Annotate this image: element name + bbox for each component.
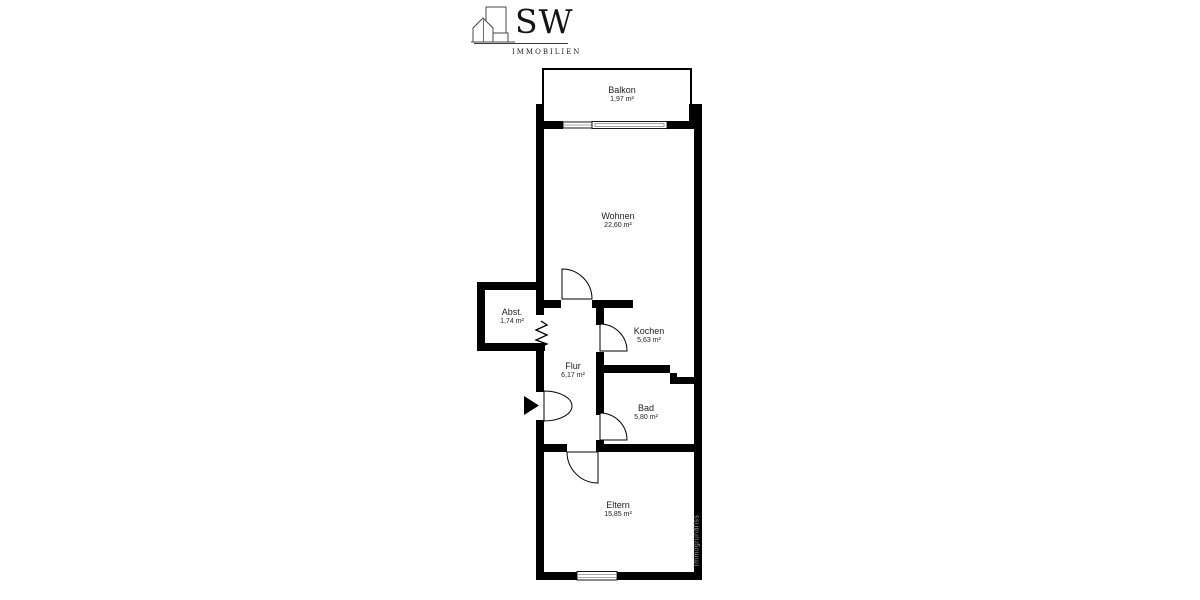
wall	[592, 300, 633, 308]
room-area: 15,85 m²	[604, 511, 632, 519]
room-area: 5,63 m²	[634, 337, 665, 345]
door-swing-bad	[600, 413, 627, 440]
room-label-balkon: Balkon 1,97 m²	[608, 85, 636, 104]
wall-kitchen-bath	[596, 365, 670, 373]
room-label-eltern: Eltern 15,85 m²	[604, 500, 632, 519]
wall-abst-top	[477, 282, 544, 290]
wall	[596, 308, 604, 325]
wall	[596, 373, 604, 415]
room-label-flur: Flur 6,17 m²	[561, 361, 585, 380]
balcony-door-window	[592, 122, 667, 129]
room-label-wohnen: Wohnen 22,60 m²	[601, 211, 634, 230]
wall-shaft	[670, 377, 694, 384]
wall	[536, 104, 544, 121]
room-area: 1,97 m²	[608, 96, 636, 104]
room-name: Flur	[561, 361, 585, 372]
floorplan-canvas: SW IMMOBILIEN	[0, 0, 1200, 600]
door-swing-wohnen	[562, 269, 592, 299]
wall	[536, 351, 544, 392]
floorplan-drawing	[0, 0, 1200, 600]
door-swing-entrance	[544, 391, 572, 421]
wall	[596, 444, 694, 452]
room-label-abst: Abst. 1,74 m²	[500, 307, 524, 326]
entrance-arrow-icon	[524, 396, 539, 415]
room-name: Wohnen	[601, 211, 634, 222]
wall	[536, 121, 563, 129]
room-label-bad: Bad 5,80 m²	[634, 403, 658, 422]
room-name: Eltern	[604, 500, 632, 511]
watermark-text: Immogrundriss	[693, 506, 702, 576]
room-area: 5,80 m²	[634, 414, 658, 422]
room-name: Bad	[634, 403, 658, 414]
wall	[536, 572, 577, 580]
wall	[544, 300, 561, 308]
wall-abst-left	[477, 290, 485, 351]
room-name: Balkon	[608, 85, 636, 96]
door-swing-eltern	[567, 452, 598, 483]
room-name: Kochen	[634, 326, 665, 337]
wall-abst-bottom	[477, 343, 545, 351]
window	[577, 572, 617, 581]
room-area: 22,60 m²	[601, 222, 634, 230]
room-label-kochen: Kochen 5,63 m²	[634, 326, 665, 345]
wall	[689, 104, 702, 121]
wall	[617, 572, 702, 580]
room-area: 1,74 m²	[500, 318, 524, 326]
room-name: Abst.	[500, 307, 524, 318]
door-swing-kochen	[600, 324, 627, 351]
wall	[536, 444, 567, 452]
room-area: 6,17 m²	[561, 372, 585, 380]
wall	[667, 121, 702, 129]
